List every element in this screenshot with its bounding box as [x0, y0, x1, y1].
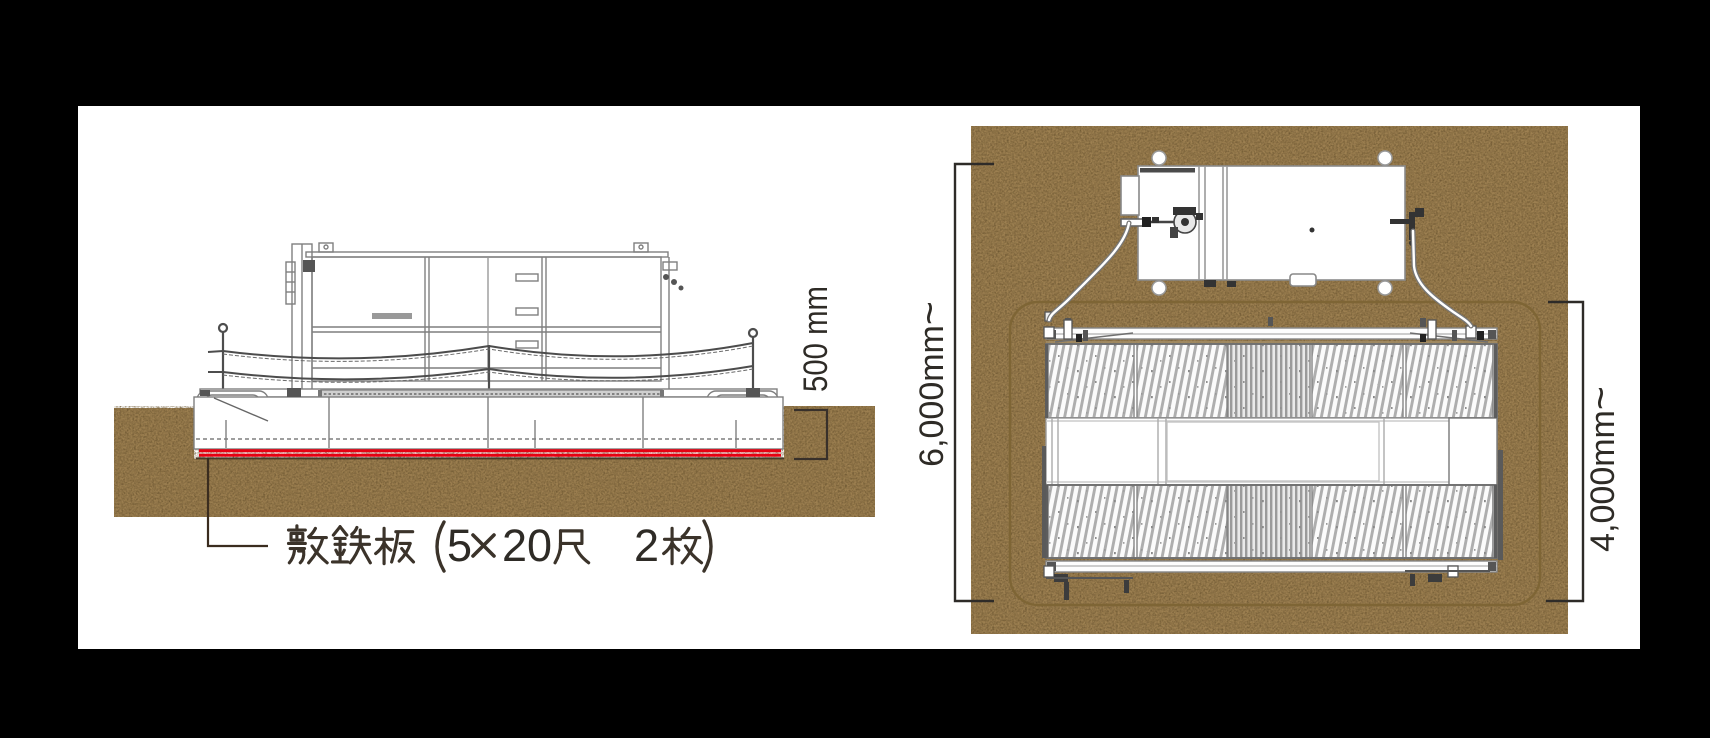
svg-text:4,000mm~: 4,000mm~: [1577, 386, 1623, 552]
svg-text:5: 5: [447, 520, 472, 571]
svg-text:2: 2: [634, 520, 659, 571]
svg-text:20: 20: [502, 520, 552, 571]
svg-text:500 mm: 500 mm: [797, 286, 835, 392]
svg-text:6,000mm~: 6,000mm~: [906, 301, 952, 467]
